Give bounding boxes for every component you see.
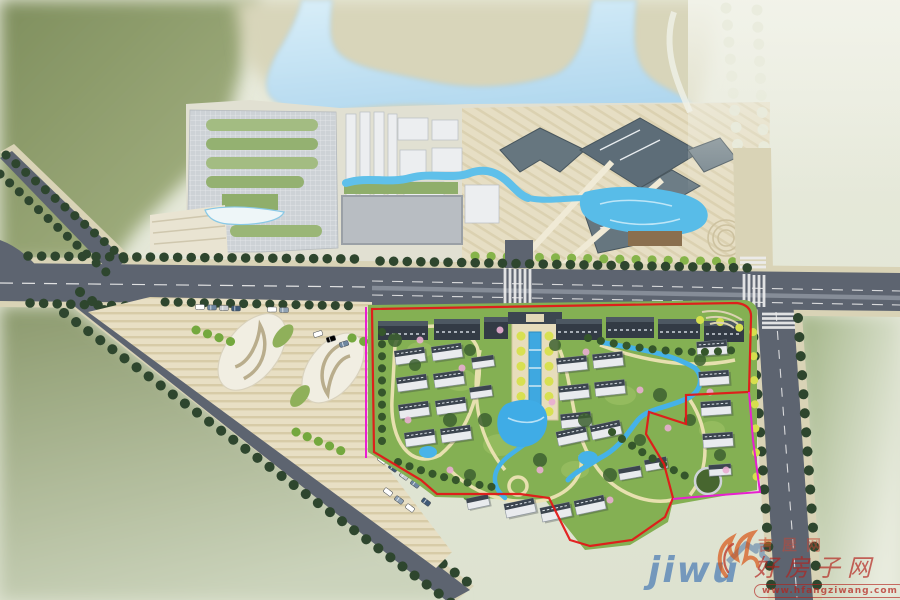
phoenix-logo-icon: [712, 528, 760, 584]
commercial-grey-hall: [342, 196, 462, 244]
ghost-wash: [688, 0, 900, 195]
pondlet-west: [419, 446, 437, 458]
commercial-district: [150, 100, 770, 270]
site-plan-canvas: [0, 0, 900, 600]
pond-deck: [628, 231, 682, 246]
watermark-hfangziwang: 吉屋网 好房子网 www.hfangziwang.com: [730, 534, 888, 598]
watermark-url: www.hfangziwang.com: [754, 584, 900, 598]
masterplan-rendering: jiwu 吉屋网 好房子网 www.hfangziwang.com: [0, 0, 900, 600]
site-name-cn: 好房子网: [754, 548, 878, 583]
pondlet: [578, 451, 598, 465]
